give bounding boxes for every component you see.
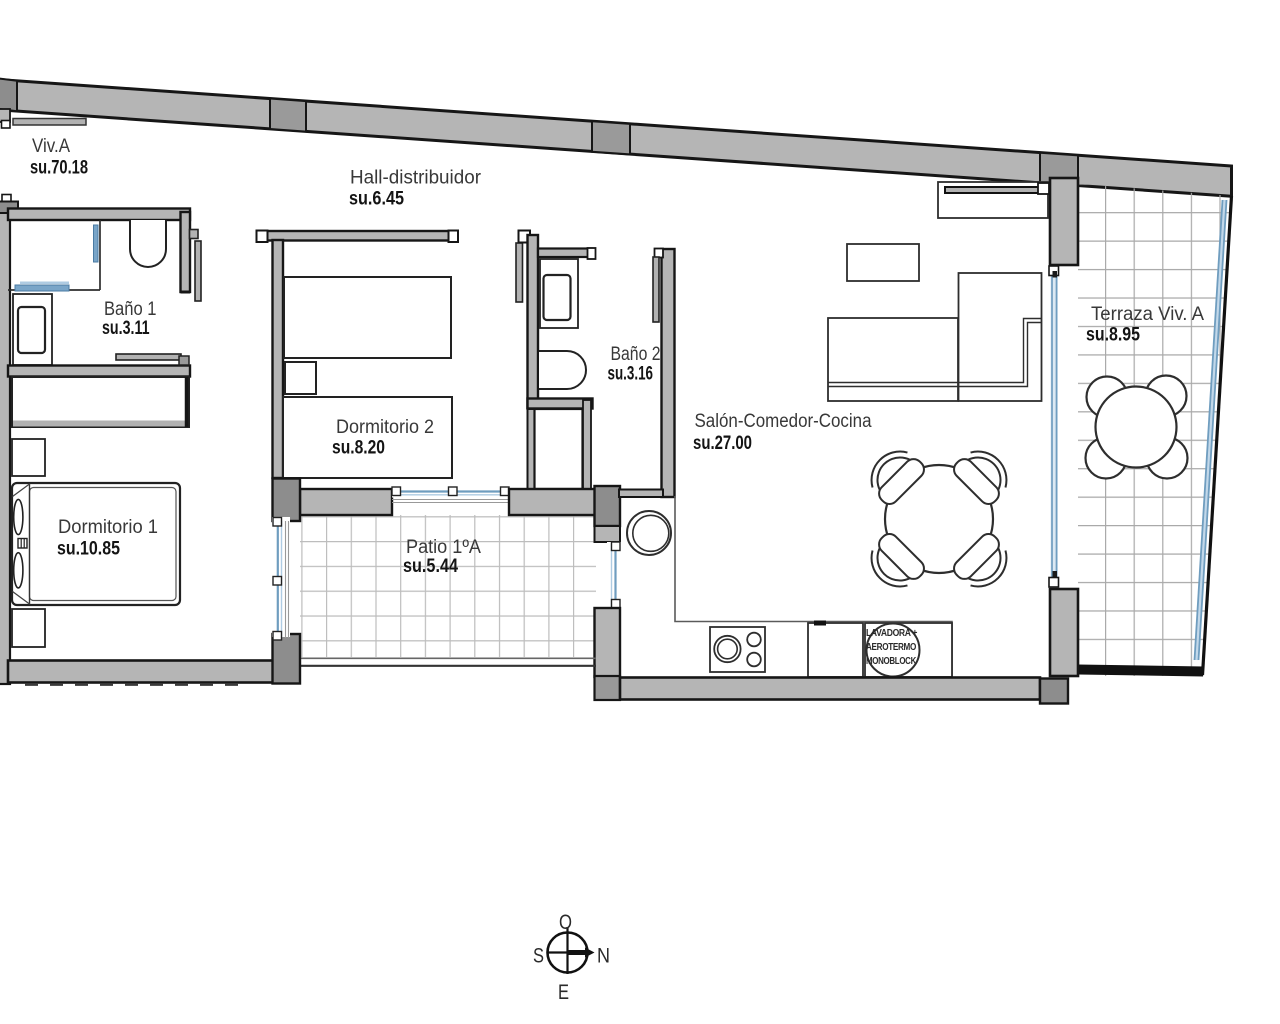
svg-text:su.3.11: su.3.11 [102, 318, 150, 339]
svg-text:MONOBLOCK: MONOBLOCK [866, 656, 917, 667]
svg-text:O: O [559, 911, 572, 934]
svg-text:Salón-Comedor-Cocina: Salón-Comedor-Cocina [695, 411, 872, 432]
svg-text:su.5.44: su.5.44 [403, 556, 458, 577]
svg-text:su.27.00: su.27.00 [693, 433, 752, 454]
svg-text:E: E [558, 981, 569, 1004]
svg-text:LAVADORA +: LAVADORA + [866, 628, 917, 639]
svg-text:S: S [533, 945, 544, 968]
svg-text:su.6.45: su.6.45 [349, 189, 404, 210]
svg-text:su.8.95: su.8.95 [1086, 325, 1140, 346]
svg-text:AEROTERMO: AEROTERMO [866, 642, 917, 653]
svg-text:Hall-distribuidor: Hall-distribuidor [350, 168, 482, 189]
svg-text:Viv.A: Viv.A [32, 136, 70, 157]
svg-text:su.3.16: su.3.16 [608, 364, 654, 385]
svg-text:su.10.85: su.10.85 [57, 539, 120, 560]
svg-text:Baño 1: Baño 1 [104, 299, 157, 320]
svg-text:Dormitorio 1: Dormitorio 1 [58, 517, 158, 538]
svg-text:su.70.18: su.70.18 [30, 158, 88, 179]
svg-text:Dormitorio 2: Dormitorio 2 [336, 417, 434, 438]
svg-text:Patio 1ºA: Patio 1ºA [406, 537, 481, 558]
svg-text:Terraza Viv. A: Terraza Viv. A [1091, 304, 1204, 325]
svg-text:N: N [597, 945, 610, 968]
svg-text:su.8.20: su.8.20 [332, 438, 385, 459]
svg-text:Baño 2: Baño 2 [611, 344, 661, 365]
